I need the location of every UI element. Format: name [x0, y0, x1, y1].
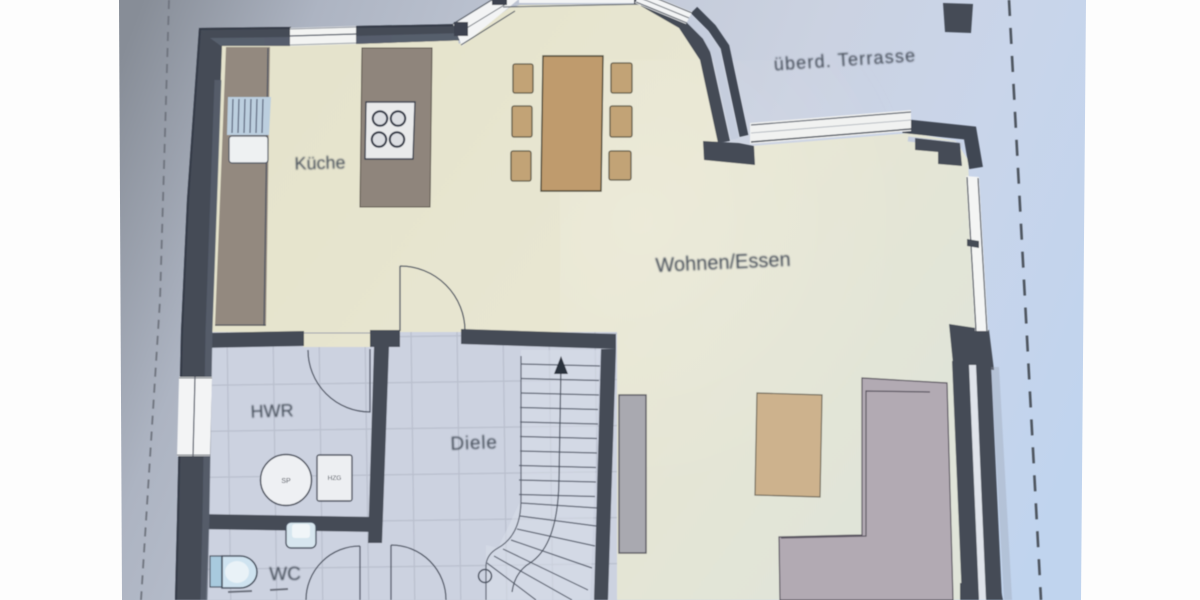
svg-text:Diele: Diele — [450, 432, 498, 455]
svg-text:SP: SP — [281, 478, 291, 485]
svg-text:HWR: HWR — [250, 400, 294, 421]
svg-text:WC: WC — [269, 564, 301, 586]
svg-text:Küche: Küche — [294, 152, 346, 173]
svg-text:HZG: HZG — [328, 475, 342, 482]
